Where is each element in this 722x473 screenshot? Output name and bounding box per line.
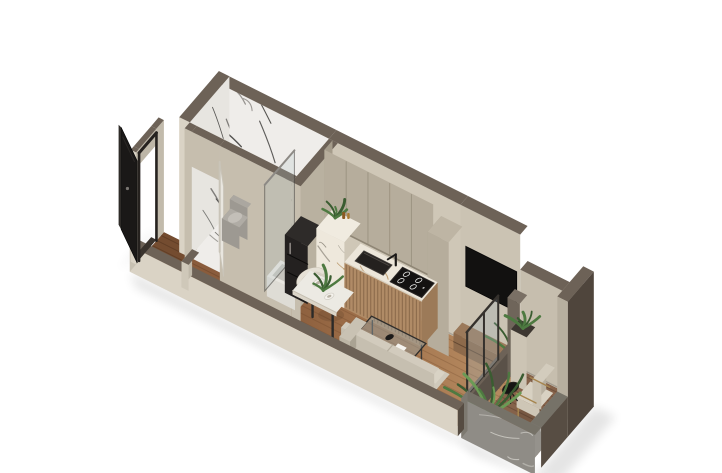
apartment-floorplan-3d-render [0,0,722,473]
scene-svg [0,0,722,473]
